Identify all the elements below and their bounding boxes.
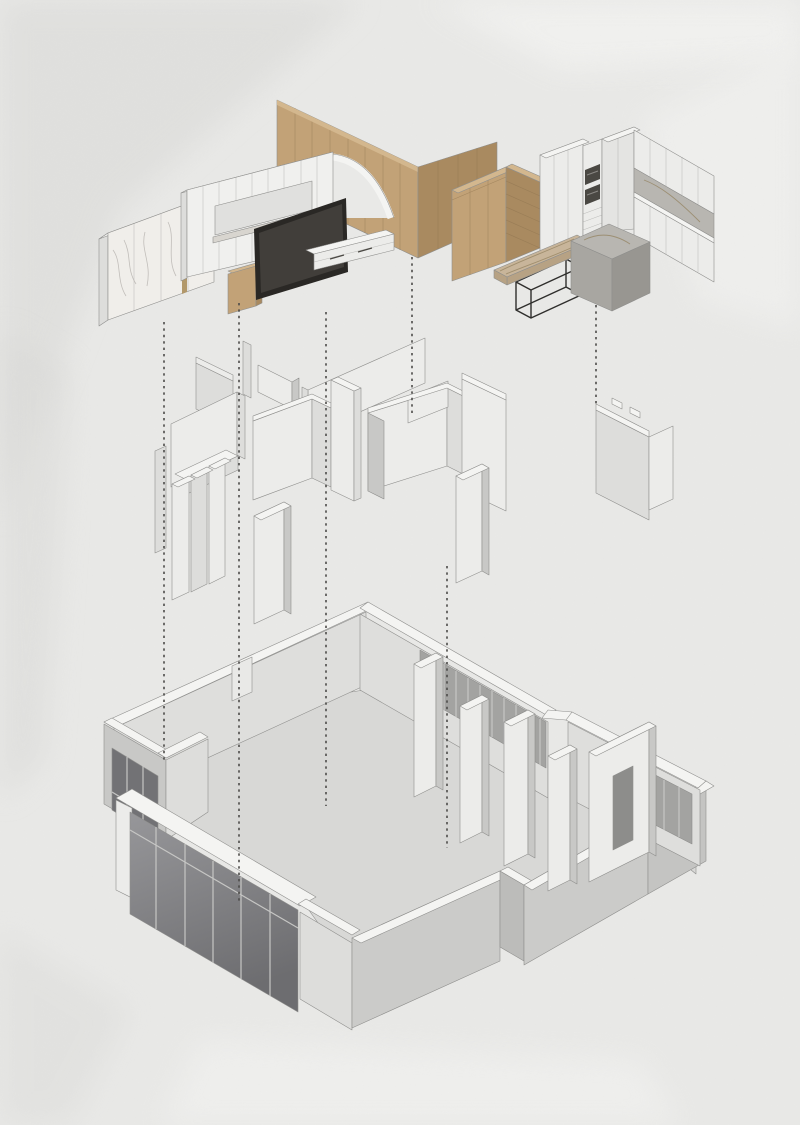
diagram-canvas xyxy=(0,0,800,1125)
freestanding-pillar xyxy=(456,464,489,583)
kitchen-island xyxy=(571,224,650,311)
center-partition-wall xyxy=(331,377,361,501)
front-partition-wall xyxy=(254,502,291,624)
wall-strip xyxy=(243,341,251,398)
built-in-ovens xyxy=(583,139,602,239)
exploded-axonometric-diagram xyxy=(0,0,800,1125)
